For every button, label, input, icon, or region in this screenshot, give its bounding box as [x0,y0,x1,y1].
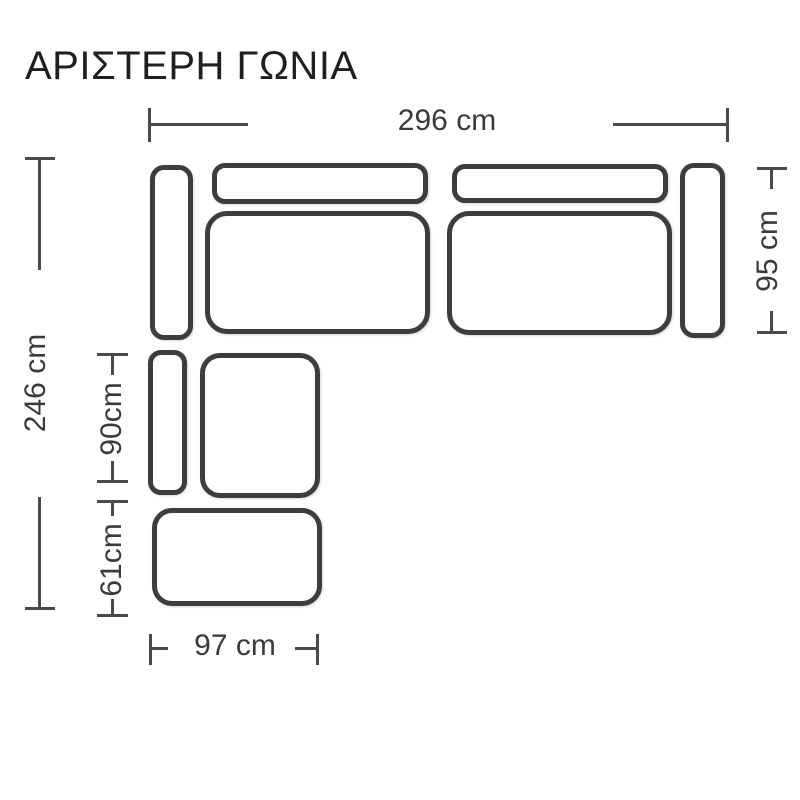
dim-line [38,497,41,609]
dim-tick [757,331,787,334]
sofa-piece-right-seat [447,211,672,335]
dim-line [613,123,728,126]
dim-line [111,355,114,375]
diagram-title: ΑΡΙΣΤΕΡΗ ΓΩΝΙΑ [25,44,358,89]
dim-line [150,123,248,126]
sofa-piece-left-backrest [212,163,428,204]
dim-line [295,647,318,650]
dim-label-right-depth: 95 cm [751,210,785,292]
sofa-piece-left-seat [205,211,430,334]
sofa-dimension-diagram: ΑΡΙΣΤΕΡΗ ΓΩΝΙΑ 296 cm 95 cm 246 cm 90cm [0,0,800,800]
dim-label-left-depth: 246 cm [19,334,53,432]
dim-tick [97,480,128,483]
dim-label-top-width: 296 cm [398,104,496,138]
dim-tick [726,108,729,142]
sofa-piece-right-backrest [452,164,668,203]
dim-label-bottom-width: 97 cm [194,629,276,663]
dim-line [111,461,114,482]
sofa-piece-corner-seat [200,353,320,498]
dim-label-ottoman-depth: 61cm [95,523,129,596]
dim-line [151,647,168,650]
dim-label-corner-depth: 90cm [95,382,129,455]
dim-tick [316,634,319,665]
sofa-piece-right-armrest [680,163,725,338]
dim-line [770,311,773,333]
dim-line [111,502,114,516]
dim-tick [97,614,128,617]
dim-line [770,169,773,189]
sofa-piece-left-armrest [150,165,193,340]
dim-tick [25,607,55,610]
sofa-piece-ottoman [152,508,322,606]
dim-line [38,159,41,270]
sofa-piece-corner-armrest [148,350,187,495]
